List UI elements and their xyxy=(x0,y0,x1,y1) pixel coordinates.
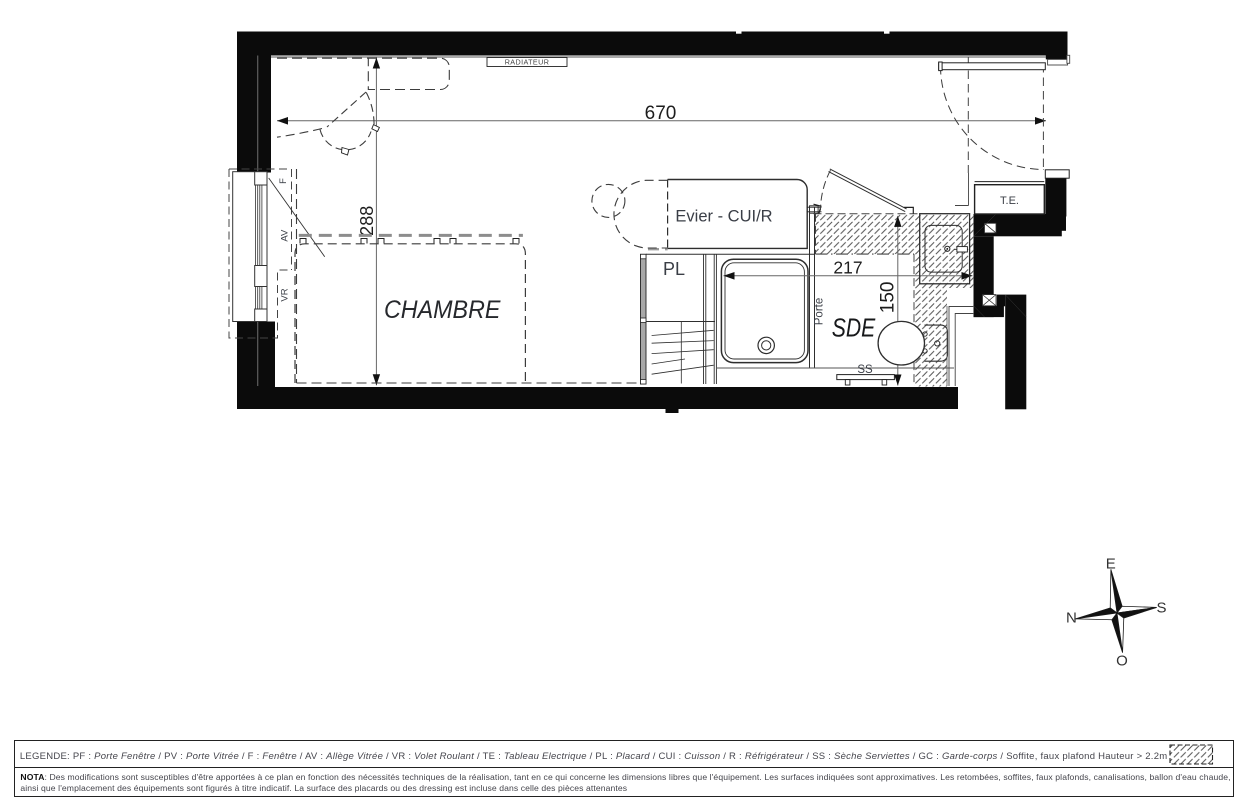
svg-text:F: F xyxy=(278,178,289,184)
svg-text:PL: PL xyxy=(663,259,685,279)
svg-text:150: 150 xyxy=(878,282,899,314)
svg-text:N: N xyxy=(1066,610,1077,627)
svg-text:CHAMBRE: CHAMBRE xyxy=(384,296,501,324)
svg-text:217: 217 xyxy=(833,257,862,277)
svg-text:Porte: Porte xyxy=(814,298,826,326)
svg-text:VR: VR xyxy=(280,288,291,301)
svg-text:288: 288 xyxy=(357,206,377,236)
svg-text:670: 670 xyxy=(645,103,677,124)
svg-text:SDE: SDE xyxy=(832,315,876,343)
svg-text:T.E.: T.E. xyxy=(1000,195,1019,207)
svg-text:S: S xyxy=(1156,600,1166,617)
svg-text:E: E xyxy=(1106,556,1116,573)
svg-text:Evier - CUI/R: Evier - CUI/R xyxy=(675,208,772,226)
svg-text:AV: AV xyxy=(280,229,291,242)
svg-text:O: O xyxy=(1116,653,1128,670)
svg-text:RADIATEUR: RADIATEUR xyxy=(505,58,550,67)
